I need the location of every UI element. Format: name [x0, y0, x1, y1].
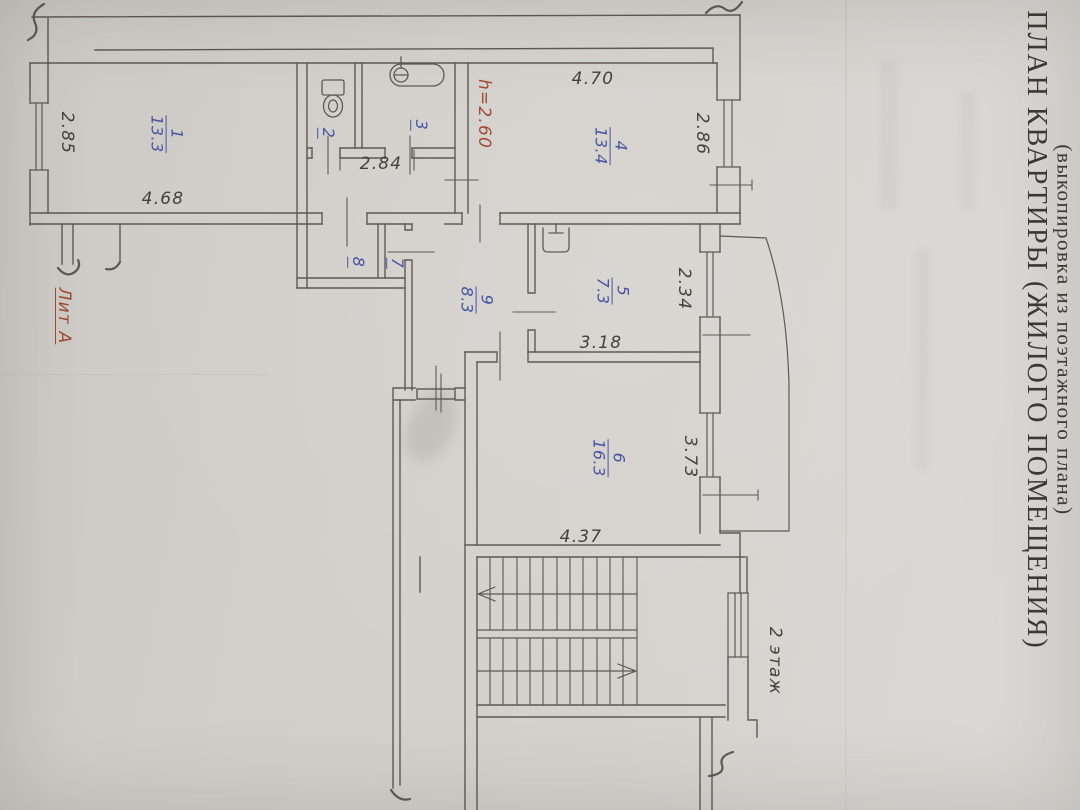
room-label-9: 98.3	[457, 287, 494, 314]
dim-2-84: 2.84	[360, 154, 403, 174]
interior-walls	[30, 63, 757, 810]
sink-icon	[543, 224, 569, 252]
exterior-walls	[30, 15, 740, 557]
bathtub-icon	[390, 57, 444, 86]
floor-plan-photo: 113.323413.457.3616.37898.32.854.682.844…	[0, 0, 1080, 810]
floor-label: 2 этаж	[765, 627, 785, 695]
dim-3-18: 3.18	[580, 333, 623, 353]
dim-2-86: 2.86	[692, 113, 712, 156]
room-label-8: 8	[346, 257, 366, 268]
dim-4-68: 4.68	[142, 189, 185, 209]
toilet-icon	[322, 80, 344, 117]
dim-2-85: 2.85	[57, 112, 77, 155]
document-title: ПЛАН КВАРТИРЫ (ЖИЛОГО ПОМЕЩЕНИЯ)	[1020, 10, 1052, 649]
liter-label: Лит А	[54, 288, 74, 345]
room-label-3: 3	[409, 120, 429, 131]
window-symbol	[30, 100, 748, 657]
balcony-outline	[720, 236, 789, 531]
room-label-1: 113.3	[147, 115, 184, 153]
wall-break-icon	[28, 2, 742, 800]
dim-4-70: 4.70	[572, 69, 615, 89]
room-label-7: 7	[385, 258, 405, 269]
room-label-4: 413.4	[591, 127, 628, 165]
staircase-icon	[477, 557, 637, 705]
dim-3-73: 3.73	[680, 436, 700, 479]
dim-4-37: 4.37	[560, 527, 603, 547]
room-label-6: 616.3	[589, 439, 626, 477]
document-subtitle: (выкопировка из поэтажного плана)	[1052, 144, 1077, 515]
room-label-5: 57.3	[593, 278, 630, 305]
dim-2-34: 2.34	[674, 268, 694, 311]
ceiling-height-note: h=2.60	[474, 79, 494, 149]
room-label-2: 2	[316, 128, 336, 139]
